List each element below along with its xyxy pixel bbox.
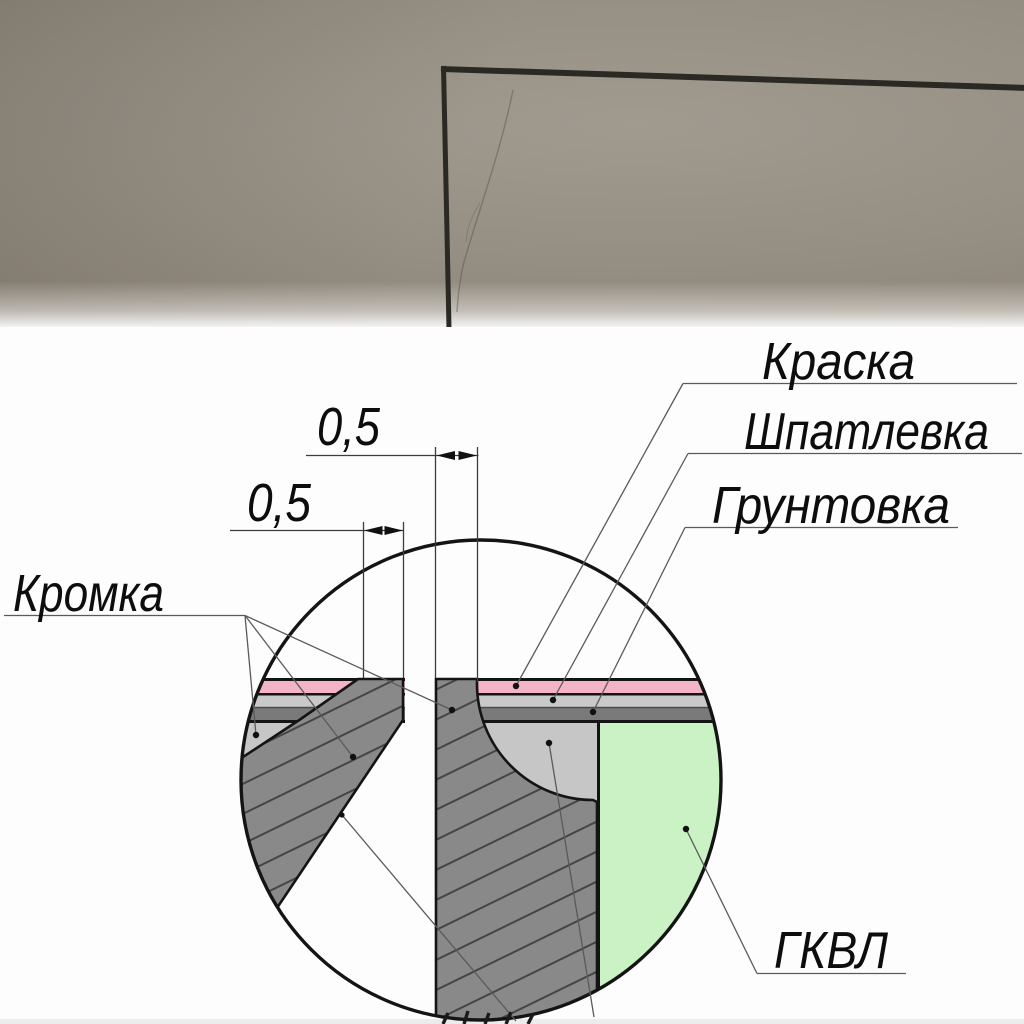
label-paint: Краска: [762, 333, 915, 391]
bottom-edge-band: [0, 1019, 1024, 1024]
dimension-value-upper: 0,5: [317, 397, 381, 457]
label-putty: Шпатлевка: [744, 403, 989, 461]
dot-primer: [590, 709, 596, 715]
dot-putty: [550, 697, 556, 703]
label-primer: Грунтовка: [712, 477, 950, 535]
dot-board: [683, 826, 689, 832]
sep: [436, 693, 728, 696]
dot-edge-2: [350, 754, 356, 760]
right-paint-layer: [436, 681, 728, 693]
dot-edge-1: [253, 732, 259, 738]
screenshot-root: 0,5 0,5: [0, 0, 1024, 1024]
label-edge: Кромка: [13, 565, 164, 623]
dot-edge-3: [449, 707, 455, 713]
dot-paint: [513, 683, 519, 689]
label-board: ГКВЛ: [774, 922, 888, 980]
joint-detail-drawing: 0,5 0,5: [0, 0, 1024, 1024]
right-top-line: [436, 678, 728, 681]
dot-board-edge: [339, 812, 344, 817]
dimension-value-lower: 0,5: [247, 473, 312, 533]
dot-joint-putty: [546, 740, 552, 746]
